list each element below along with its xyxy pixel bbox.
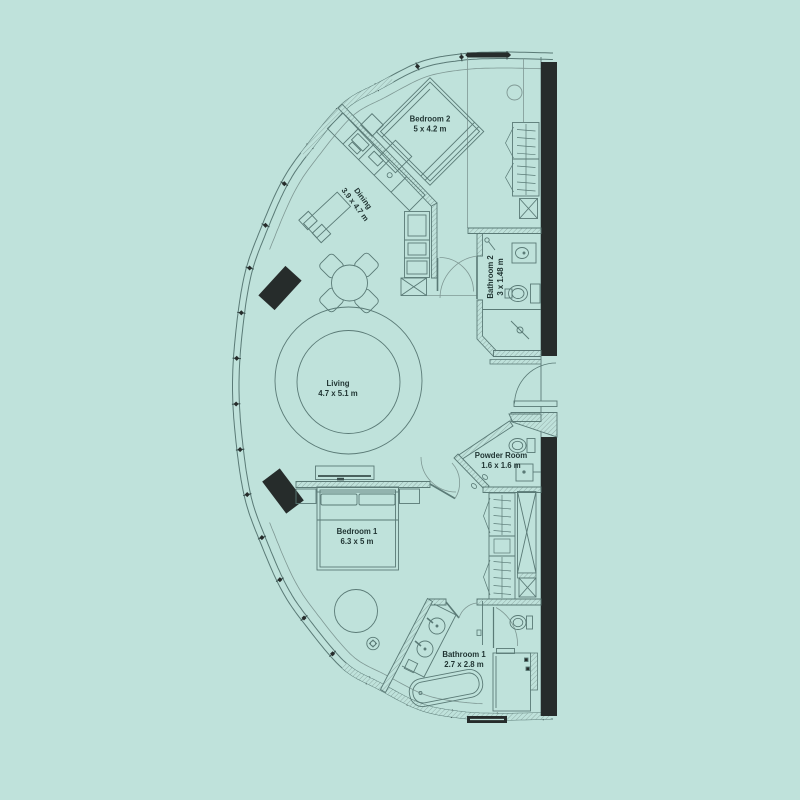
svg-text:Bedroom 1: Bedroom 1 — [337, 527, 378, 536]
svg-text:6.3 x 5 m: 6.3 x 5 m — [341, 537, 374, 546]
svg-text:2.7 x 2.8 m: 2.7 x 2.8 m — [444, 660, 484, 669]
svg-text:5 x 4.2 m: 5 x 4.2 m — [414, 125, 447, 134]
svg-text:Living: Living — [327, 379, 350, 388]
svg-text:1.6 x 1.6 m: 1.6 x 1.6 m — [481, 461, 521, 470]
svg-text:Powder Room: Powder Room — [475, 451, 527, 460]
svg-text:Bedroom 2: Bedroom 2 — [410, 115, 451, 124]
svg-text:3 x 1.48 m: 3 x 1.48 m — [496, 258, 505, 295]
svg-text:Bathroom 1: Bathroom 1 — [442, 650, 486, 659]
svg-text:4.7 x 5.1 m: 4.7 x 5.1 m — [318, 389, 358, 398]
svg-text:Bathroom 2: Bathroom 2 — [486, 255, 495, 299]
